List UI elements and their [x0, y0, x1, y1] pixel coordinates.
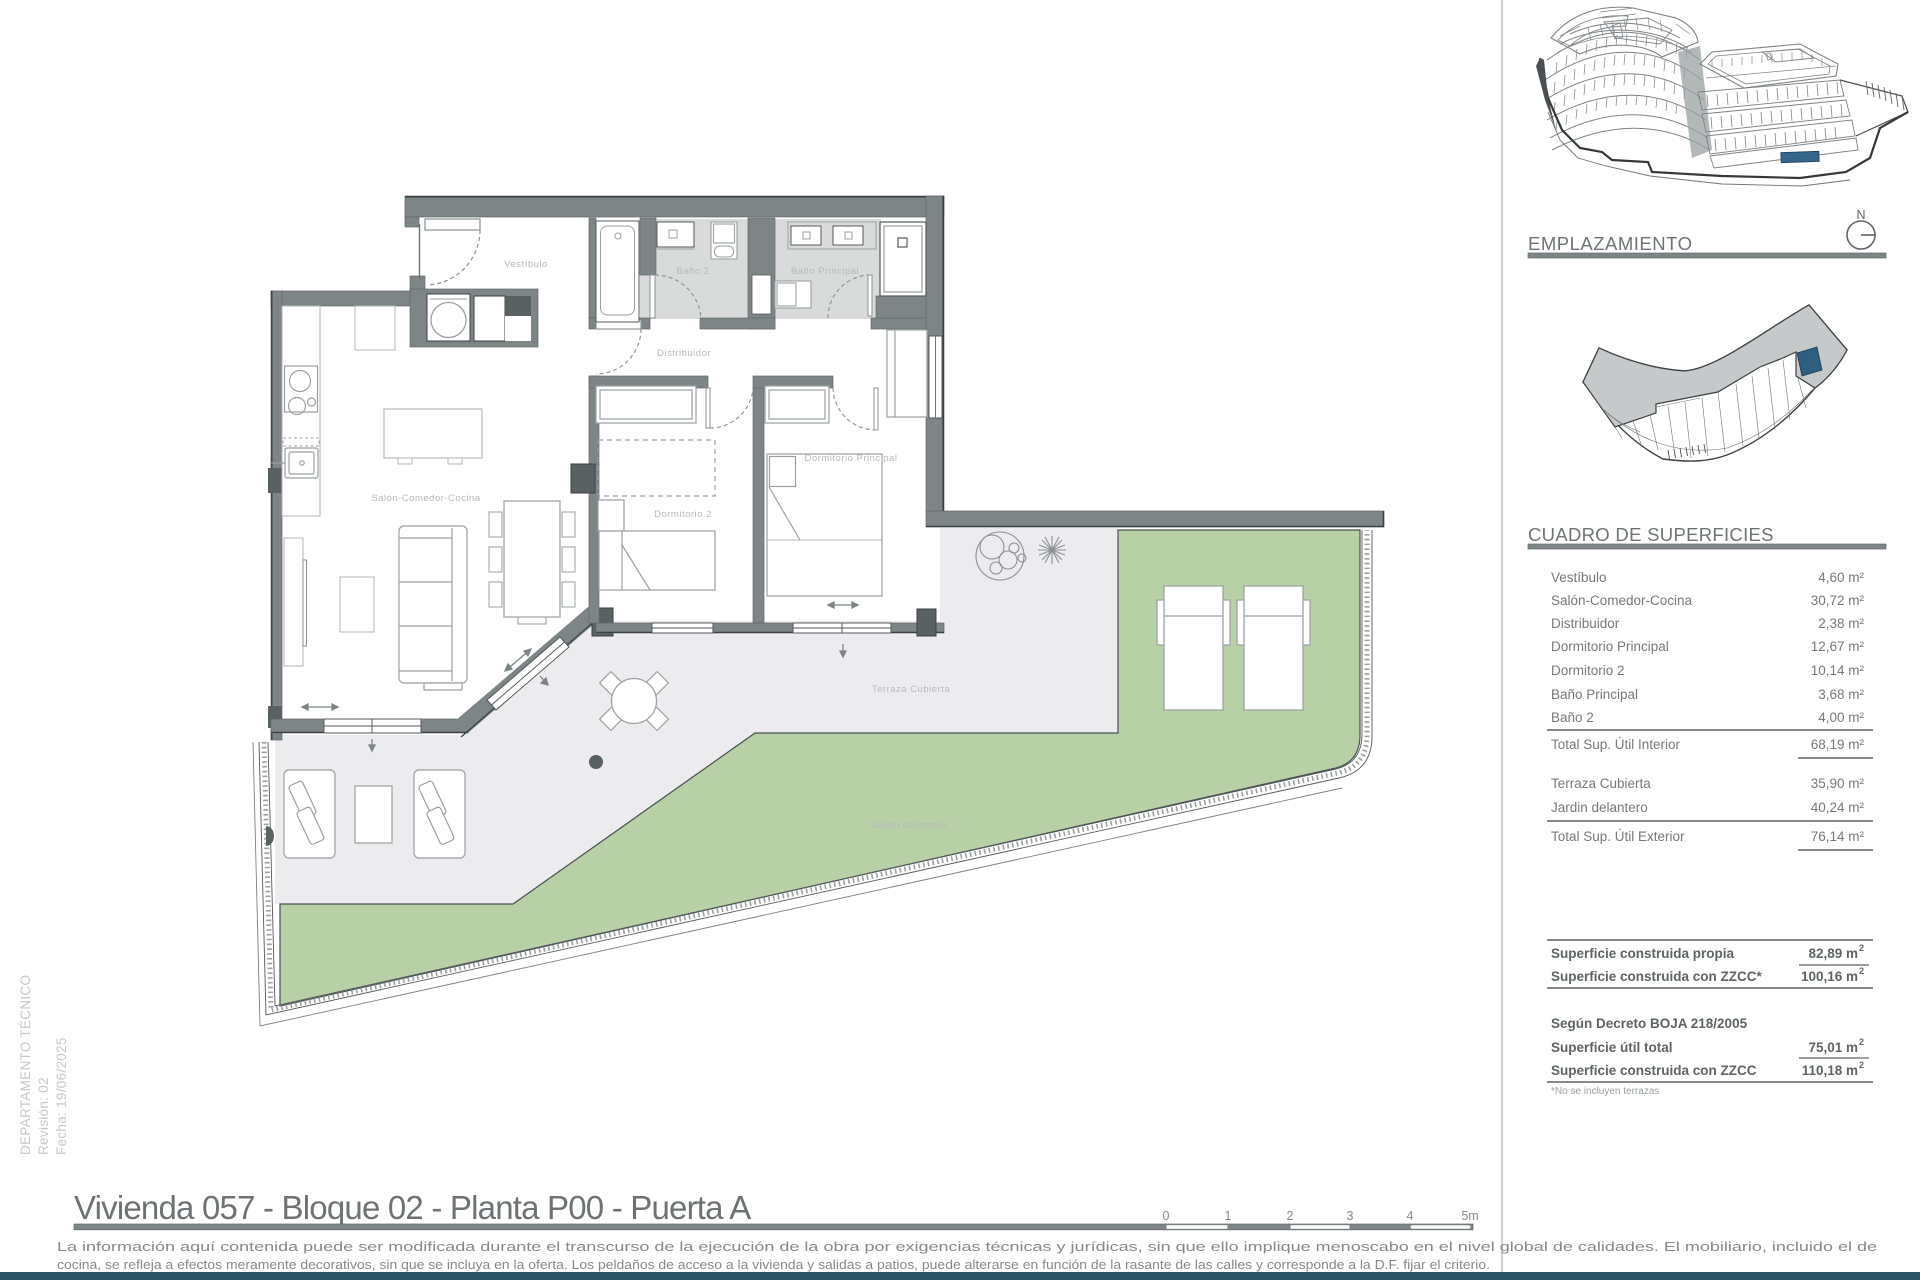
svg-text:Dormitorio Principal: Dormitorio Principal: [1551, 639, 1669, 654]
svg-text:Superficie construida propia: Superficie construida propia: [1551, 946, 1735, 961]
svg-text:5m: 5m: [1461, 1209, 1478, 1223]
svg-text:Revisión: 02: Revisión: 02: [36, 1077, 51, 1155]
svg-text:Dormitorio Principal: Dormitorio Principal: [805, 453, 898, 464]
svg-text:*No se incluyen terrazas: *No se incluyen terrazas: [1551, 1086, 1659, 1097]
svg-text:2: 2: [1859, 966, 1864, 976]
svg-text:2: 2: [1859, 1060, 1864, 1070]
svg-text:75,01 m: 75,01 m: [1808, 1040, 1858, 1055]
svg-text:4: 4: [1407, 1209, 1414, 1223]
svg-text:Vestíbulo: Vestíbulo: [1551, 570, 1607, 585]
svg-text:Total Sup. Útil Exterior: Total Sup. Útil Exterior: [1551, 829, 1685, 844]
svg-text:Distribuidor: Distribuidor: [657, 348, 711, 359]
svg-text:Jardin delantero: Jardin delantero: [871, 820, 947, 831]
svg-text:Fecha: 19/06/2025: Fecha: 19/06/2025: [54, 1037, 69, 1155]
svg-text:4,00 m²: 4,00 m²: [1818, 710, 1864, 725]
svg-text:Salón-Comedor-Cocina: Salón-Comedor-Cocina: [1551, 593, 1693, 608]
svg-text:Terraza Cubierta: Terraza Cubierta: [872, 684, 950, 695]
svg-text:110,18 m: 110,18 m: [1802, 1063, 1858, 1078]
svg-text:Dormitorio 2: Dormitorio 2: [654, 509, 712, 520]
svg-text:76,14 m²: 76,14 m²: [1811, 829, 1865, 844]
svg-text:Baño 2: Baño 2: [1551, 710, 1594, 725]
svg-text:Superficie útil total: Superficie útil total: [1551, 1040, 1673, 1055]
svg-text:cocina, se refleja a efectos m: cocina, se refleja a efectos meramente d…: [57, 1257, 1490, 1272]
svg-text:1: 1: [1225, 1209, 1232, 1223]
svg-text:EMPLAZAMIENTO: EMPLAZAMIENTO: [1528, 233, 1692, 254]
svg-text:Baño 2: Baño 2: [676, 266, 709, 277]
svg-text:Total Sup. Útil Interior: Total Sup. Útil Interior: [1551, 737, 1681, 752]
svg-text:100,16 m: 100,16 m: [1801, 969, 1858, 984]
svg-text:Baño Principal: Baño Principal: [1551, 687, 1638, 702]
svg-text:Vivienda 057 - Bloque 02 - Pla: Vivienda 057 - Bloque 02 - Planta P00 - …: [74, 1189, 751, 1226]
svg-text:DEPARTAMENTO TÉCNICO: DEPARTAMENTO TÉCNICO: [18, 975, 33, 1155]
svg-text:3,68 m²: 3,68 m²: [1818, 687, 1864, 702]
svg-text:Según Decreto BOJA 218/2005: Según Decreto BOJA 218/2005: [1551, 1016, 1748, 1031]
svg-text:Baño Principal: Baño Principal: [791, 266, 859, 277]
svg-text:30,72 m²: 30,72 m²: [1811, 593, 1865, 608]
svg-text:68,19 m²: 68,19 m²: [1811, 737, 1865, 752]
svg-text:40,24 m²: 40,24 m²: [1811, 800, 1865, 815]
svg-text:Superficie construida con ZZCC: Superficie construida con ZZCC*: [1551, 969, 1763, 984]
svg-text:3: 3: [1347, 1209, 1354, 1223]
svg-text:Salón-Comedor-Cocina: Salón-Comedor-Cocina: [371, 493, 480, 504]
svg-text:Vestíbulo: Vestíbulo: [504, 259, 548, 270]
svg-text:12,67 m²: 12,67 m²: [1811, 639, 1865, 654]
svg-text:2: 2: [1859, 1037, 1864, 1047]
svg-text:La información aquí contenida: La información aquí contenida puede ser …: [57, 1239, 1877, 1254]
svg-text:10,14 m²: 10,14 m²: [1811, 663, 1865, 678]
svg-text:N: N: [1856, 208, 1865, 222]
svg-text:2,38 m²: 2,38 m²: [1818, 616, 1864, 631]
svg-text:2: 2: [1287, 1209, 1294, 1223]
svg-text:Superficie construida con ZZCC: Superficie construida con ZZCC: [1551, 1063, 1757, 1078]
svg-text:Jardin delantero: Jardin delantero: [1551, 800, 1648, 815]
svg-text:Distribuidor: Distribuidor: [1551, 616, 1620, 631]
svg-text:Terraza Cubierta: Terraza Cubierta: [1551, 776, 1651, 791]
svg-text:82,89 m: 82,89 m: [1808, 946, 1858, 961]
svg-text:35,90 m²: 35,90 m²: [1811, 776, 1865, 791]
svg-text:0: 0: [1163, 1209, 1170, 1223]
svg-text:Dormitorio 2: Dormitorio 2: [1551, 663, 1625, 678]
svg-text:CUADRO DE SUPERFICIES: CUADRO DE SUPERFICIES: [1528, 524, 1774, 545]
svg-text:4,60 m²: 4,60 m²: [1818, 570, 1864, 585]
svg-text:2: 2: [1859, 943, 1864, 953]
